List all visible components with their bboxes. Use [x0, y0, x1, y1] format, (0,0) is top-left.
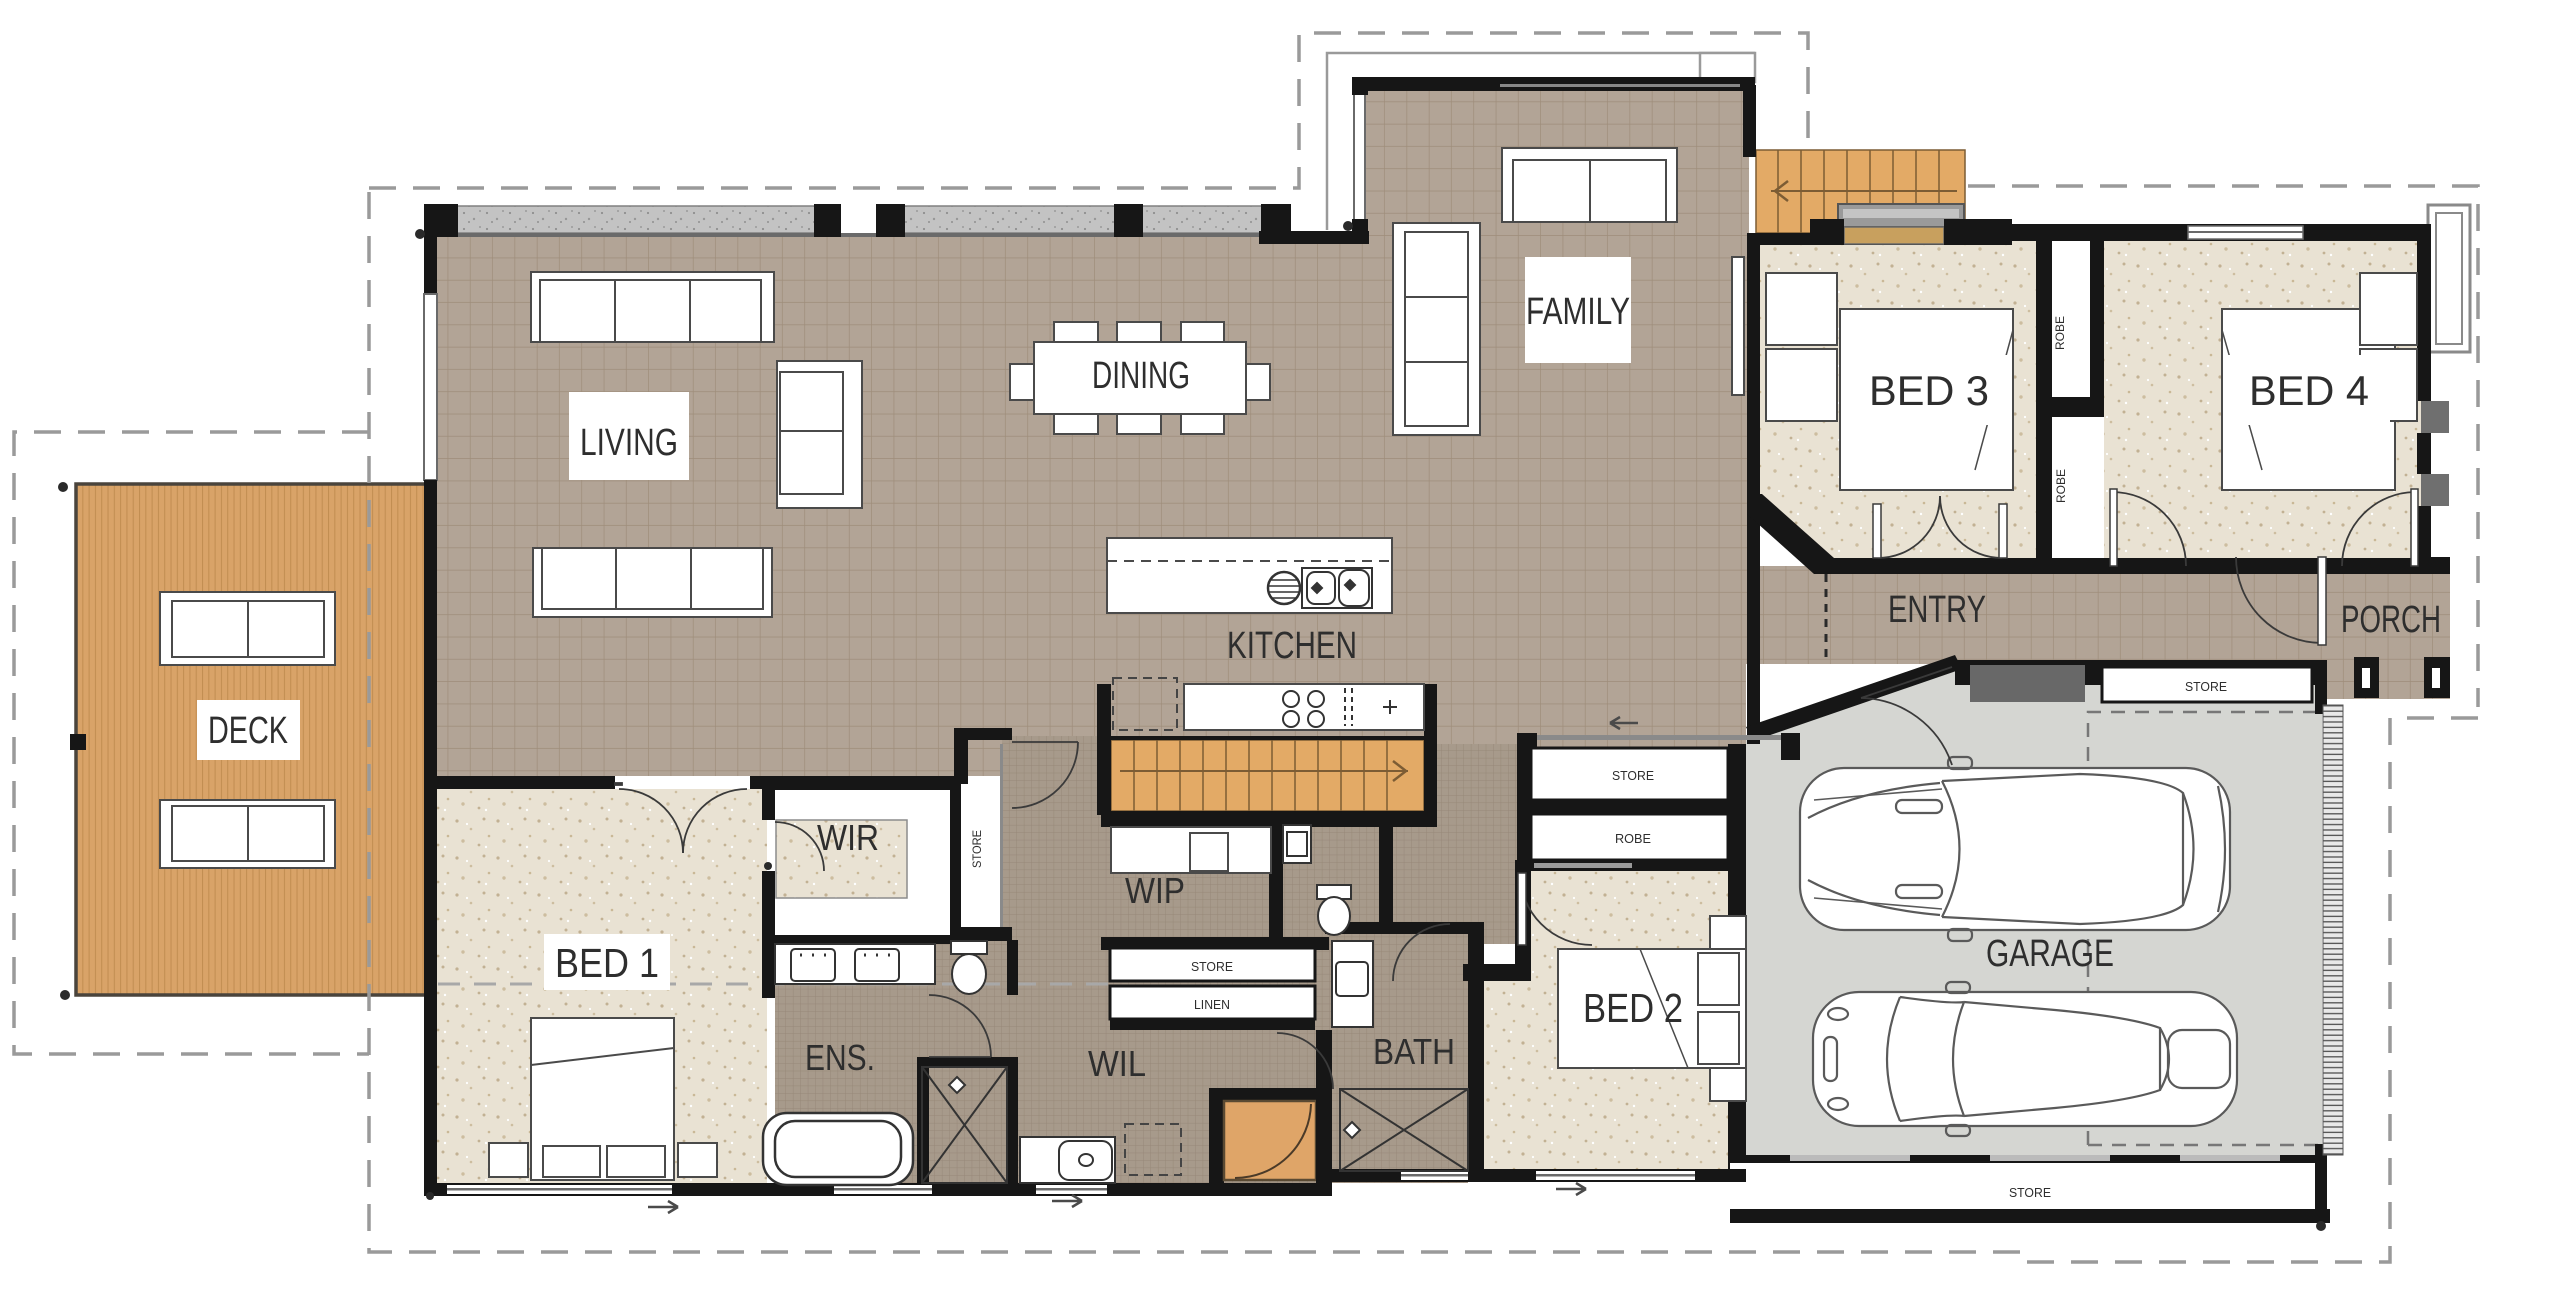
svg-text:ENTRY: ENTRY: [1888, 589, 1986, 631]
svg-text:STORE: STORE: [2009, 1185, 2051, 1200]
svg-text:WIL: WIL: [1088, 1043, 1146, 1084]
svg-text:STORE: STORE: [2185, 679, 2227, 694]
svg-text:STORE: STORE: [1612, 768, 1654, 783]
svg-text:ROBE: ROBE: [2054, 469, 2068, 503]
svg-text:ROBE: ROBE: [1615, 831, 1651, 846]
svg-text:BED 4: BED 4: [2249, 367, 2369, 414]
svg-text:ENS.: ENS.: [805, 1037, 875, 1078]
svg-text:DINING: DINING: [1092, 355, 1190, 397]
svg-text:PORCH: PORCH: [2341, 599, 2441, 641]
svg-text:BED 1: BED 1: [555, 940, 659, 986]
svg-text:LINEN: LINEN: [1194, 997, 1230, 1012]
svg-text:WIP: WIP: [1125, 870, 1185, 911]
svg-text:STORE: STORE: [1191, 959, 1233, 974]
svg-text:BED 2: BED 2: [1583, 985, 1683, 1031]
svg-text:STORE: STORE: [970, 830, 984, 868]
svg-text:LIVING: LIVING: [580, 422, 678, 464]
svg-text:GARAGE: GARAGE: [1986, 933, 2114, 975]
svg-text:WIR: WIR: [817, 817, 879, 858]
svg-text:FAMILY: FAMILY: [1526, 291, 1630, 333]
svg-text:KITCHEN: KITCHEN: [1227, 625, 1357, 667]
svg-text:DECK: DECK: [208, 710, 288, 752]
svg-text:ROBE: ROBE: [2053, 316, 2067, 350]
svg-text:BED 3: BED 3: [1869, 367, 1989, 414]
svg-text:BATH: BATH: [1373, 1031, 1455, 1072]
